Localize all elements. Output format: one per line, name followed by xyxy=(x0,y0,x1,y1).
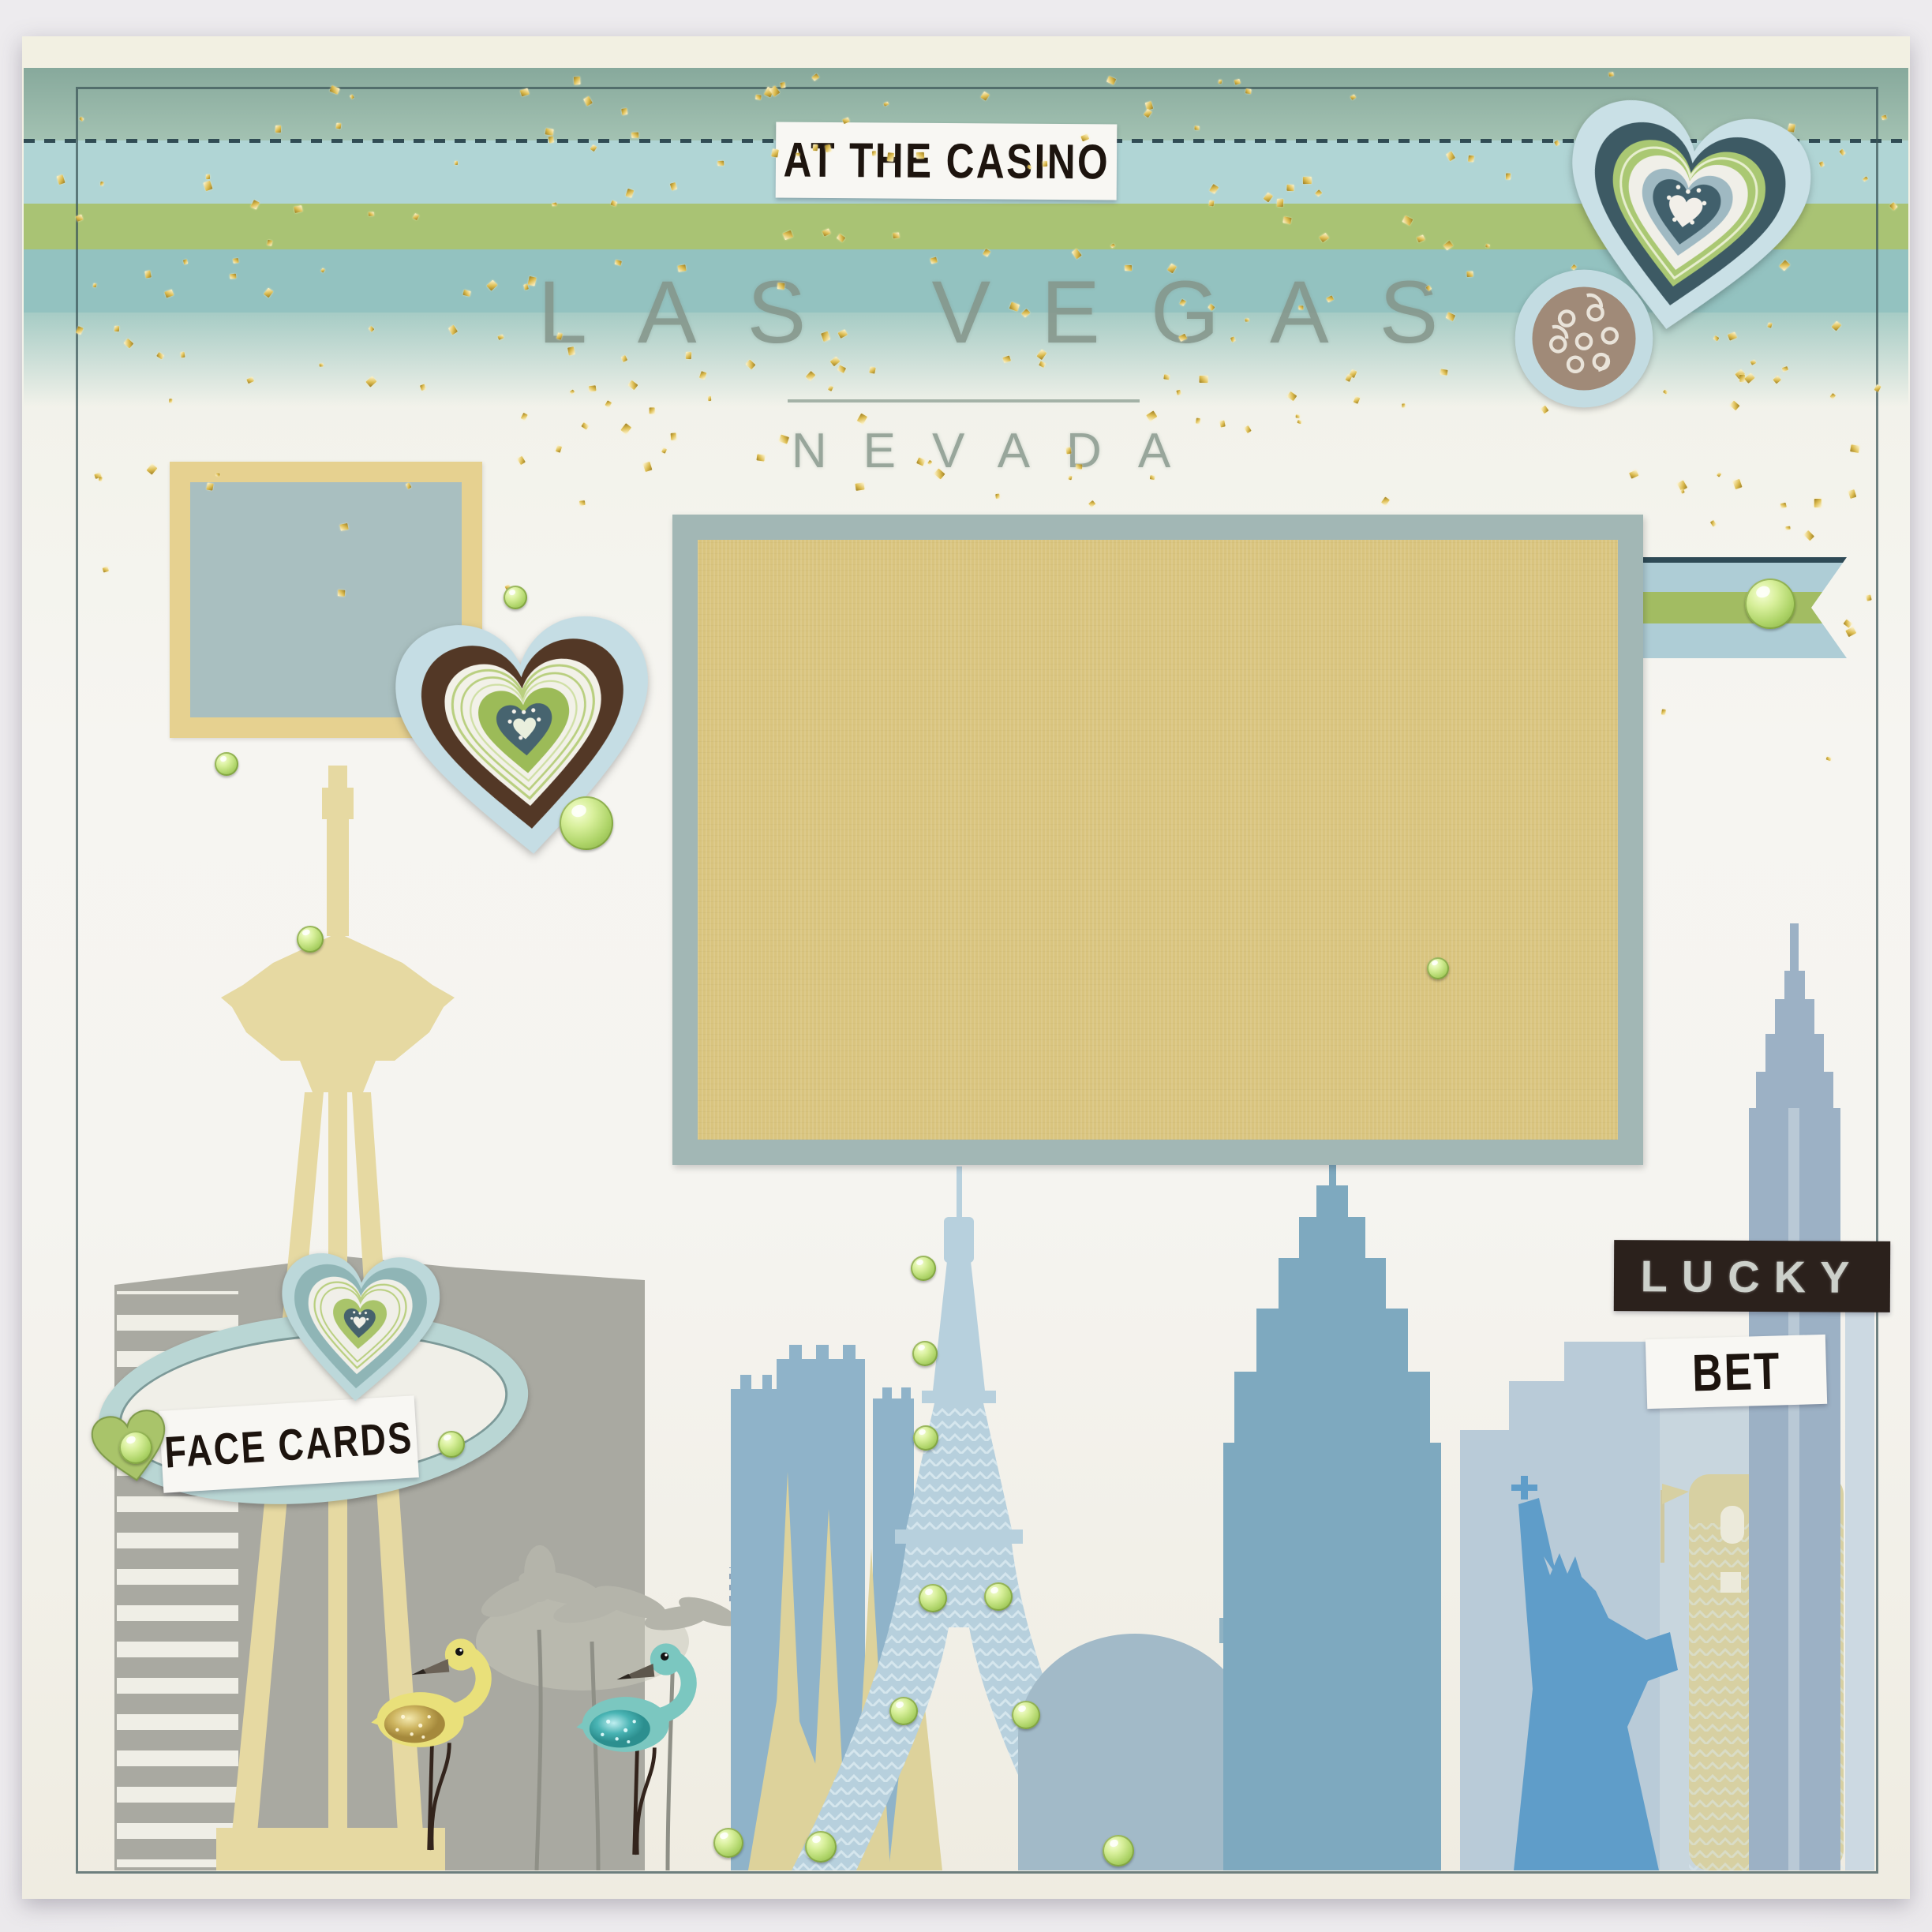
green-gem xyxy=(119,1431,152,1464)
photo-mat-yellow xyxy=(698,540,1618,1140)
face-cards-label: FACE CARDS xyxy=(163,1411,415,1477)
scrapbook-photo: LAS VEGAS NEVADA xyxy=(0,0,1932,1932)
green-gem xyxy=(912,1341,938,1366)
stepped-tower xyxy=(1223,1149,1441,1870)
green-gem xyxy=(919,1584,947,1612)
face-cards-sticker: FACE CARDS xyxy=(159,1395,419,1493)
page-title: LAS VEGAS xyxy=(410,264,1566,361)
lucky-sticker: LUCKY xyxy=(1614,1240,1890,1312)
heart-embellishment-face-cards xyxy=(269,1245,449,1412)
green-gem xyxy=(215,752,238,776)
pennant-banner xyxy=(1610,557,1847,658)
casino-dome xyxy=(1018,1634,1252,1870)
bet-label: BET xyxy=(1691,1340,1782,1402)
edge-strip xyxy=(1845,1279,1874,1870)
teal-flamingo-pin xyxy=(562,1612,736,1872)
casino-sticker-label: AT THE CASINO xyxy=(783,132,1110,190)
green-gem xyxy=(913,1425,938,1451)
green-gem xyxy=(1745,578,1795,629)
title-divider-line xyxy=(788,399,1140,402)
heart-embellishment-left xyxy=(380,603,671,874)
page-subtitle: NEVADA xyxy=(600,423,1362,479)
green-gem xyxy=(984,1582,1013,1611)
bet-sticker: BET xyxy=(1646,1335,1827,1409)
green-gem xyxy=(438,1431,465,1458)
green-gem xyxy=(1012,1701,1040,1729)
green-gem xyxy=(805,1831,837,1863)
filigree-medallion xyxy=(1512,267,1656,410)
green-gem xyxy=(504,586,527,609)
green-gem xyxy=(911,1256,936,1281)
green-gem xyxy=(889,1697,918,1725)
green-gem xyxy=(297,926,324,953)
green-gem xyxy=(1103,1835,1134,1866)
lucky-label: LUCKY xyxy=(1640,1250,1863,1302)
green-gem xyxy=(1427,957,1449,979)
casino-sticker: AT THE CASINO xyxy=(776,122,1118,200)
yellow-flamingo-pin xyxy=(357,1607,530,1867)
green-gem xyxy=(560,796,613,850)
green-gem xyxy=(713,1828,743,1858)
